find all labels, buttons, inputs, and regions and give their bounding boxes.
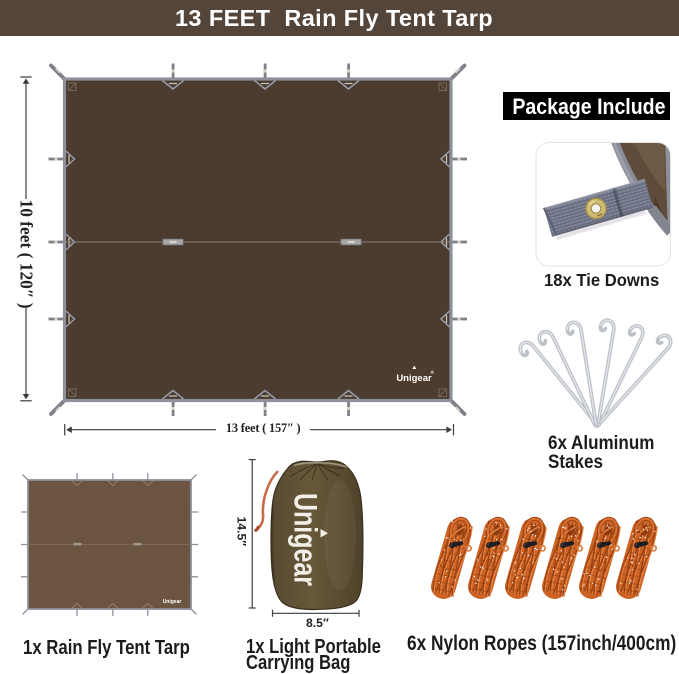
svg-text:Unigear: Unigear [287, 493, 323, 586]
svg-text:Unigear: Unigear [396, 373, 432, 384]
svg-text:Unigear: Unigear [163, 599, 182, 605]
